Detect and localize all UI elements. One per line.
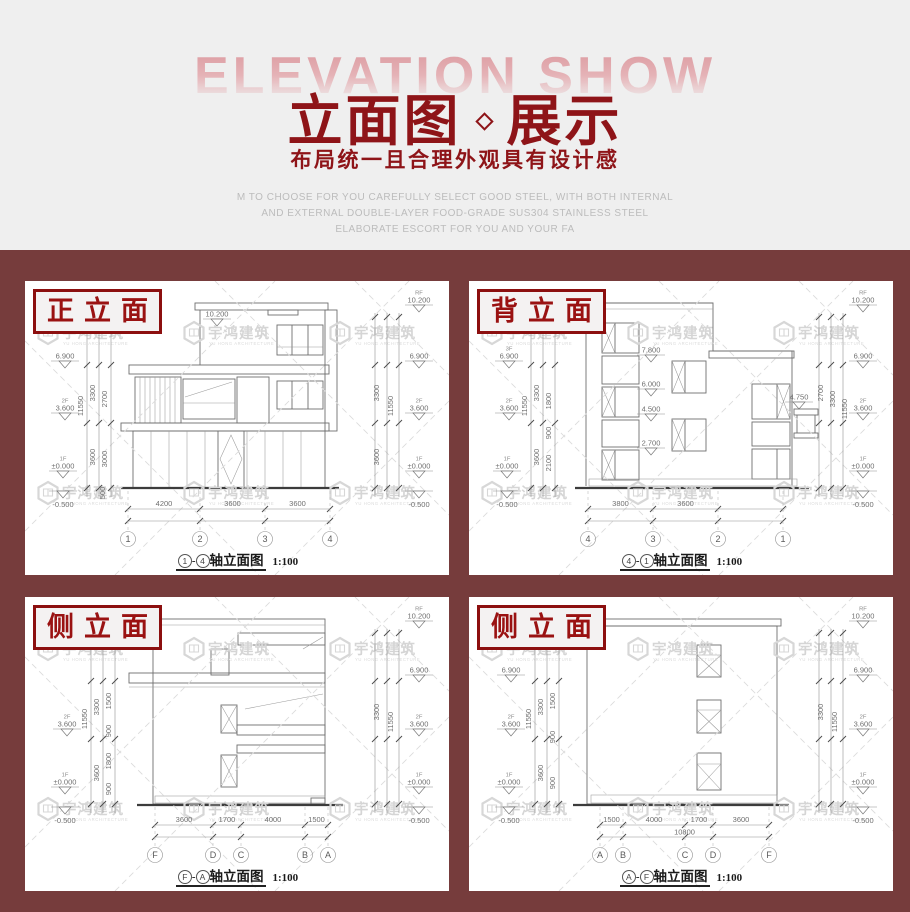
- construction-dash-line: [659, 281, 893, 515]
- svg-text:6.900: 6.900: [854, 666, 873, 675]
- svg-text:YU HONG ARCHITECTURE: YU HONG ARCHITECTURE: [355, 657, 420, 662]
- dimension-value: 11550: [840, 399, 849, 419]
- brand-watermark: 宇鸿建筑YU HONG ARCHITECTURE: [629, 482, 719, 506]
- svg-text:宇鸿建筑: 宇鸿建筑: [354, 640, 416, 658]
- hero-description-line: AND EXTERNAL DOUBLE-LAYER FOOD-GRADE SUS…: [261, 208, 648, 219]
- dimension-value: 2700: [100, 391, 109, 408]
- svg-text:F: F: [152, 850, 158, 860]
- caption-axis-range: A-F轴立面图: [620, 869, 710, 887]
- elevation-marker: 10.200RF: [849, 291, 877, 313]
- axis-bubble: 4: [581, 532, 596, 547]
- elevation-marker: 6.000: [637, 380, 665, 397]
- panel-label-side-fa: 侧立面: [33, 605, 162, 650]
- svg-text:RF: RF: [859, 607, 867, 613]
- dimension-value: 4200: [156, 499, 173, 508]
- dimension-value: 11550: [386, 712, 395, 732]
- panel-back-elevation: 宇鸿建筑YU HONG ARCHITECTURE宇鸿建筑YU HONG ARCH…: [469, 281, 893, 575]
- elevation-marker: 3.6002F: [51, 399, 79, 421]
- svg-text:RF: RF: [415, 607, 423, 613]
- axis-bubble-from: 1: [178, 554, 192, 568]
- elevation-marker: 10.200RF: [405, 607, 433, 629]
- svg-text:宇鸿建筑: 宇鸿建筑: [652, 640, 714, 658]
- caption-text: 轴立面图: [210, 553, 264, 568]
- elevation-marker: 6.900: [405, 352, 433, 369]
- svg-text:3.600: 3.600: [56, 404, 75, 413]
- svg-text:YU HONG ARCHITECTURE: YU HONG ARCHITECTURE: [63, 657, 128, 662]
- svg-text:10.200: 10.200: [408, 296, 431, 305]
- dimension-value: 3600: [733, 815, 750, 824]
- brand-watermark: 宇鸿建筑YU HONG ARCHITECTURE: [629, 322, 719, 346]
- axis-bubble: C: [234, 848, 249, 863]
- panel-caption: 1-4轴立面图1:100: [25, 549, 449, 570]
- brand-watermark: 宇鸿建筑YU HONG ARCHITECTURE: [185, 638, 275, 662]
- dimension-value: 3300: [372, 385, 381, 402]
- dimension-value: 11550: [80, 709, 89, 729]
- dimension-value: 1700: [219, 815, 236, 824]
- brand-watermark: 宇鸿建筑YU HONG ARCHITECTURE: [185, 322, 275, 346]
- svg-text:6.900: 6.900: [410, 666, 429, 675]
- svg-text:1F: 1F: [860, 457, 867, 463]
- brand-watermark: 宇鸿建筑YU HONG ARCHITECTURE: [775, 638, 865, 662]
- svg-text:10.200: 10.200: [206, 310, 229, 319]
- svg-text:YU HONG ARCHITECTURE: YU HONG ARCHITECTURE: [653, 657, 718, 662]
- caption-text: 轴立面图: [654, 553, 708, 568]
- svg-text:-0.500: -0.500: [498, 816, 519, 825]
- svg-text:宇鸿建筑: 宇鸿建筑: [208, 640, 270, 658]
- dimension-value: 1500: [603, 815, 620, 824]
- elevation-marker: 3.6002F: [849, 399, 877, 421]
- svg-text:2.700: 2.700: [642, 439, 661, 448]
- svg-text:2F: 2F: [62, 399, 69, 405]
- svg-text:-0.500: -0.500: [52, 500, 73, 509]
- svg-text:YU HONG ARCHITECTURE: YU HONG ARCHITECTURE: [209, 657, 274, 662]
- elevation-marker: 10.200RF: [405, 291, 433, 313]
- elevation-marker: 2.700: [637, 439, 665, 456]
- svg-text:±0.000: ±0.000: [852, 462, 875, 471]
- svg-text:2F: 2F: [416, 399, 423, 405]
- svg-text:YU HONG ARCHITECTURE: YU HONG ARCHITECTURE: [799, 657, 864, 662]
- dimension-value: 3300: [828, 391, 837, 408]
- svg-text:6.900: 6.900: [500, 352, 519, 361]
- svg-text:C: C: [238, 850, 245, 860]
- svg-text:2F: 2F: [508, 715, 515, 721]
- svg-text:1: 1: [780, 534, 785, 544]
- svg-text:4.500: 4.500: [642, 405, 661, 414]
- elevation-marker: 6.900: [405, 666, 433, 683]
- svg-text:YU HONG ARCHITECTURE: YU HONG ARCHITECTURE: [355, 341, 420, 346]
- svg-text:YU HONG ARCHITECTURE: YU HONG ARCHITECTURE: [507, 341, 572, 346]
- caption-axis-range: F-A轴立面图: [176, 869, 266, 887]
- axis-bubble: 1: [121, 532, 136, 547]
- svg-text:2F: 2F: [860, 715, 867, 721]
- svg-text:D: D: [710, 850, 717, 860]
- elevation-marker: 10.200RF: [849, 607, 877, 629]
- svg-text:3.600: 3.600: [500, 404, 519, 413]
- caption-scale: 1:100: [717, 872, 743, 884]
- elevation-marker: 3.6002F: [497, 715, 525, 737]
- svg-text:3.600: 3.600: [410, 404, 429, 413]
- svg-text:±0.000: ±0.000: [852, 778, 875, 787]
- svg-text:3.600: 3.600: [58, 720, 77, 729]
- construction-dash-line: [215, 281, 449, 515]
- elevation-marker: 6.900: [849, 666, 877, 683]
- dimension-value: 3000: [100, 451, 109, 468]
- svg-text:3: 3: [650, 534, 655, 544]
- svg-text:±0.000: ±0.000: [498, 778, 521, 787]
- svg-text:±0.000: ±0.000: [496, 462, 519, 471]
- total-dimension-value: 10800: [674, 828, 695, 837]
- svg-text:±0.000: ±0.000: [52, 462, 75, 471]
- svg-text:3.600: 3.600: [410, 720, 429, 729]
- dimension-value: 1500: [548, 693, 557, 710]
- dimension-value: 11550: [524, 709, 533, 729]
- dimension-value: 900: [548, 731, 557, 744]
- axis-bubble: A: [321, 848, 336, 863]
- svg-text:3.600: 3.600: [854, 404, 873, 413]
- svg-text:10.200: 10.200: [408, 612, 431, 621]
- axis-bubble-to: A: [196, 870, 210, 884]
- svg-text:A: A: [325, 850, 331, 860]
- svg-text:宇鸿建筑: 宇鸿建筑: [798, 800, 860, 818]
- axis-bubble: 1: [776, 532, 791, 547]
- dimension-value: 900: [544, 427, 553, 440]
- axis-bubble-from: A: [622, 870, 636, 884]
- svg-text:B: B: [302, 850, 308, 860]
- panel-side-elevation-fa: 宇鸿建筑YU HONG ARCHITECTURE宇鸿建筑YU HONG ARCH…: [25, 597, 449, 891]
- svg-text:10.200: 10.200: [852, 296, 875, 305]
- svg-text:2F: 2F: [860, 399, 867, 405]
- caption-axis-range: 1-4轴立面图: [176, 553, 266, 571]
- dimension-value: 3600: [289, 499, 306, 508]
- svg-text:±0.000: ±0.000: [408, 462, 431, 471]
- svg-text:10.200: 10.200: [852, 612, 875, 621]
- dimension-value: 3600: [92, 765, 101, 782]
- construction-dash-line: [659, 597, 893, 831]
- svg-text:2F: 2F: [416, 715, 423, 721]
- elevation-marker: 3.6002F: [53, 715, 81, 737]
- page-subtitle: 布局统一且合理外观具有设计感: [0, 144, 910, 174]
- hero-section: ELEVATION SHOW 立面图展示 布局统一且合理外观具有设计感 M TO…: [0, 0, 910, 250]
- brand-watermark: 宇鸿建筑YU HONG ARCHITECTURE: [331, 322, 421, 346]
- svg-text:6.900: 6.900: [56, 352, 75, 361]
- svg-text:6.900: 6.900: [854, 352, 873, 361]
- svg-text:B: B: [620, 850, 626, 860]
- caption-text: 轴立面图: [210, 869, 264, 884]
- elevation-marker: 7.800: [637, 346, 665, 363]
- dimension-value: 500: [98, 487, 107, 500]
- elevation-marker: ±0.0001F: [49, 457, 77, 479]
- svg-text:3F: 3F: [506, 347, 513, 353]
- caption-scale: 1:100: [273, 556, 299, 568]
- axis-bubble-to: 1: [640, 554, 654, 568]
- svg-text:6.900: 6.900: [410, 352, 429, 361]
- elevation-marker: 6.900: [497, 666, 525, 683]
- diamond-separator-icon: [475, 112, 493, 130]
- brand-watermark: 宇鸿建筑YU HONG ARCHITECTURE: [775, 482, 865, 506]
- svg-text:1F: 1F: [60, 457, 67, 463]
- dimension-value: 3800: [612, 499, 629, 508]
- axis-bubble: D: [206, 848, 221, 863]
- brand-watermark: 宇鸿建筑YU HONG ARCHITECTURE: [629, 638, 719, 662]
- elevation-marker: ±0.0001F: [493, 457, 521, 479]
- hero-description: M TO CHOOSE FOR YOU CAREFULLY SELECT GOO…: [0, 190, 910, 238]
- dimension-value: 1500: [308, 815, 325, 824]
- dimension-value: 1500: [104, 693, 113, 710]
- svg-text:F: F: [766, 850, 772, 860]
- elevation-marker: 6.9003F: [495, 347, 523, 369]
- hero-description-line: ELABORATE ESCORT FOR YOU AND YOUR FA: [335, 224, 574, 235]
- dimension-value: 4000: [265, 815, 282, 824]
- construction-dash-line: [25, 657, 259, 891]
- svg-text:6.900: 6.900: [502, 666, 521, 675]
- svg-text:3: 3: [262, 534, 267, 544]
- panel-caption: A-F轴立面图1:100: [469, 865, 893, 886]
- elevation-marker: 10.200: [203, 310, 231, 327]
- dimension-value: 3300: [92, 699, 101, 716]
- dimension-value: 3600: [88, 449, 97, 466]
- elevation-marker: 4.500: [637, 405, 665, 422]
- dimension-value: 3600: [677, 499, 694, 508]
- dimension-value: 1700: [691, 815, 708, 824]
- svg-text:4.750: 4.750: [790, 393, 809, 402]
- svg-text:±0.000: ±0.000: [408, 778, 431, 787]
- svg-text:宇鸿建筑: 宇鸿建筑: [798, 324, 860, 342]
- svg-text:RF: RF: [415, 291, 423, 297]
- panel-side-elevation-af: 宇鸿建筑YU HONG ARCHITECTURE宇鸿建筑YU HONG ARCH…: [469, 597, 893, 891]
- axis-bubble-to: F: [640, 870, 654, 884]
- dimension-value: 1800: [104, 753, 113, 770]
- dimension-value: 3600: [532, 449, 541, 466]
- axis-bubble: 2: [711, 532, 726, 547]
- elevation-marker: 3.6002F: [405, 399, 433, 421]
- svg-text:4: 4: [585, 534, 590, 544]
- panel-label-back: 背立面: [477, 289, 606, 334]
- axis-bubble: C: [678, 848, 693, 863]
- panel-label-front: 正立面: [33, 289, 162, 334]
- axis-bubble-from: F: [178, 870, 192, 884]
- svg-text:宇鸿建筑: 宇鸿建筑: [208, 324, 270, 342]
- svg-text:1F: 1F: [860, 773, 867, 779]
- panel-caption: 4-1轴立面图1:100: [469, 549, 893, 570]
- svg-text:-0.500: -0.500: [408, 816, 429, 825]
- svg-text:YU HONG ARCHITECTURE: YU HONG ARCHITECTURE: [653, 341, 718, 346]
- svg-text:YU HONG ARCHITECTURE: YU HONG ARCHITECTURE: [653, 817, 718, 822]
- axis-bubble-to: 4: [196, 554, 210, 568]
- caption-scale: 1:100: [273, 872, 299, 884]
- svg-text:2: 2: [715, 534, 720, 544]
- elevation-marker: 4.750: [785, 393, 813, 410]
- panel-label-side-af: 侧立面: [477, 605, 606, 650]
- dimension-value: 1800: [544, 393, 553, 410]
- dimension-value: 3600: [372, 449, 381, 466]
- axis-bubble: B: [298, 848, 313, 863]
- svg-text:宇鸿建筑: 宇鸿建筑: [354, 484, 416, 502]
- svg-text:-0.500: -0.500: [852, 500, 873, 509]
- svg-text:3.600: 3.600: [502, 720, 521, 729]
- svg-text:2F: 2F: [506, 399, 513, 405]
- axis-bubble: 4: [323, 532, 338, 547]
- dimension-value: 11550: [386, 396, 395, 416]
- svg-text:D: D: [210, 850, 217, 860]
- svg-text:YU HONG ARCHITECTURE: YU HONG ARCHITECTURE: [799, 341, 864, 346]
- svg-text:A: A: [597, 850, 603, 860]
- axis-bubble: 3: [646, 532, 661, 547]
- axis-bubble-from: 4: [622, 554, 636, 568]
- dimension-value: 3300: [88, 385, 97, 402]
- svg-text:YU HONG ARCHITECTURE: YU HONG ARCHITECTURE: [209, 501, 274, 506]
- svg-text:宇鸿建筑: 宇鸿建筑: [354, 800, 416, 818]
- svg-text:3.600: 3.600: [854, 720, 873, 729]
- svg-text:1F: 1F: [504, 457, 511, 463]
- axis-bubble: 2: [193, 532, 208, 547]
- svg-text:1F: 1F: [416, 457, 423, 463]
- caption-text: 轴立面图: [654, 869, 708, 884]
- panel-caption: F-A轴立面图1:100: [25, 865, 449, 886]
- elevation-marker: 6.900: [849, 352, 877, 369]
- svg-text:宇鸿建筑: 宇鸿建筑: [208, 800, 270, 818]
- hero-description-line: M TO CHOOSE FOR YOU CAREFULLY SELECT GOO…: [237, 192, 673, 203]
- elevation-marker: 3.6002F: [849, 715, 877, 737]
- svg-text:4: 4: [327, 534, 332, 544]
- svg-text:宇鸿建筑: 宇鸿建筑: [798, 640, 860, 658]
- page-title-right: 展示: [507, 90, 623, 152]
- brand-watermark: 宇鸿建筑YU HONG ARCHITECTURE: [331, 482, 421, 506]
- brand-watermark: 宇鸿建筑YU HONG ARCHITECTURE: [331, 638, 421, 662]
- svg-text:7.800: 7.800: [642, 346, 661, 355]
- svg-text:1: 1: [125, 534, 130, 544]
- svg-text:-0.500: -0.500: [54, 816, 75, 825]
- svg-text:-0.500: -0.500: [852, 816, 873, 825]
- svg-text:2: 2: [197, 534, 202, 544]
- dimension-value: 3300: [816, 704, 825, 721]
- elevation-marker: 3.6002F: [405, 715, 433, 737]
- axis-bubble: 3: [258, 532, 273, 547]
- elevation-marker: ±0.0001F: [495, 773, 523, 795]
- dimension-value: 3600: [224, 499, 241, 508]
- brand-watermark: 宇鸿建筑YU HONG ARCHITECTURE: [775, 798, 865, 822]
- dimension-value: 2700: [816, 385, 825, 402]
- svg-text:YU HONG ARCHITECTURE: YU HONG ARCHITECTURE: [507, 657, 572, 662]
- svg-text:宇鸿建筑: 宇鸿建筑: [798, 484, 860, 502]
- svg-text:1F: 1F: [416, 773, 423, 779]
- svg-text:-0.500: -0.500: [408, 500, 429, 509]
- elevation-grid: 宇鸿建筑YU HONG ARCHITECTURE宇鸿建筑YU HONG ARCH…: [0, 250, 910, 912]
- svg-text:2F: 2F: [64, 715, 71, 721]
- dimension-value: 900: [104, 783, 113, 796]
- svg-text:YU HONG ARCHITECTURE: YU HONG ARCHITECTURE: [63, 341, 128, 346]
- brand-watermark: 宇鸿建筑YU HONG ARCHITECTURE: [775, 322, 865, 346]
- dimension-value: 900: [548, 777, 557, 790]
- dimension-value: 3600: [176, 815, 193, 824]
- axis-bubble: F: [762, 848, 777, 863]
- dimension-value: 3300: [536, 699, 545, 716]
- dimension-value: 4000: [646, 815, 663, 824]
- svg-text:6.000: 6.000: [642, 380, 661, 389]
- elevation-marker: ±0.0001F: [51, 773, 79, 795]
- elevation-marker: 3.6002F: [495, 399, 523, 421]
- svg-text:1F: 1F: [62, 773, 69, 779]
- axis-bubble: F: [148, 848, 163, 863]
- elevation-marker: 6.900: [51, 352, 79, 369]
- svg-text:C: C: [682, 850, 689, 860]
- svg-text:1F: 1F: [506, 773, 513, 779]
- dimension-value: 3600: [536, 765, 545, 782]
- svg-text:±0.000: ±0.000: [54, 778, 77, 787]
- panel-front-elevation: 宇鸿建筑YU HONG ARCHITECTURE宇鸿建筑YU HONG ARCH…: [25, 281, 449, 575]
- svg-text:宇鸿建筑: 宇鸿建筑: [354, 324, 416, 342]
- axis-bubble: D: [706, 848, 721, 863]
- svg-text:-0.500: -0.500: [496, 500, 517, 509]
- axis-bubble: B: [616, 848, 631, 863]
- dimension-value: 11550: [830, 712, 839, 732]
- page-title-left: 立面图: [287, 90, 461, 152]
- svg-text:RF: RF: [859, 291, 867, 297]
- dimension-value: 900: [104, 725, 113, 738]
- construction-dash-line: [469, 657, 703, 891]
- dimension-value: 3300: [532, 385, 541, 402]
- svg-text:YU HONG ARCHITECTURE: YU HONG ARCHITECTURE: [209, 341, 274, 346]
- caption-axis-range: 4-1轴立面图: [620, 553, 710, 571]
- dimension-value: 2100: [544, 455, 553, 472]
- brand-watermark: 宇鸿建筑YU HONG ARCHITECTURE: [331, 798, 421, 822]
- svg-text:宇鸿建筑: 宇鸿建筑: [652, 324, 714, 342]
- caption-scale: 1:100: [717, 556, 743, 568]
- dimension-value: 3300: [372, 704, 381, 721]
